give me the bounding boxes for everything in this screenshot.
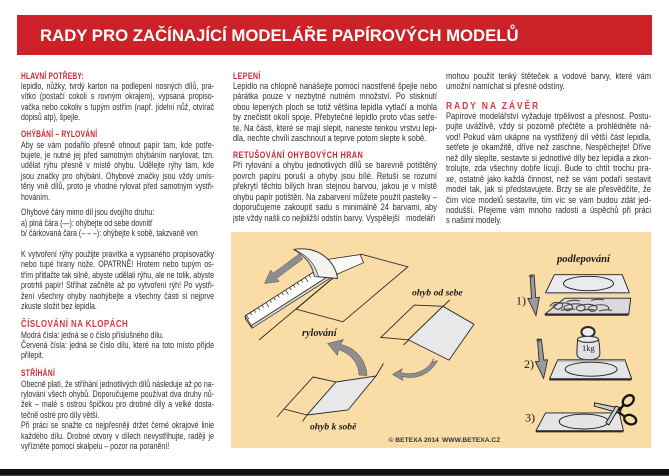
svg-text:1): 1) (516, 294, 526, 308)
svg-text:ohyb od sebe: ohyb od sebe (412, 287, 463, 298)
svg-text:1kg: 1kg (582, 343, 596, 353)
svg-text:2): 2) (524, 357, 534, 371)
svg-text:WWW.BETEXA.CZ: WWW.BETEXA.CZ (442, 437, 500, 444)
svg-text:rylování: rylování (302, 328, 338, 339)
svg-text:3): 3) (525, 410, 535, 424)
svg-text:podlepování: podlepování (556, 254, 611, 265)
svg-text:© BETEXA 2014: © BETEXA 2014 (389, 436, 440, 444)
svg-text:ohyb k sobě: ohyb k sobě (310, 421, 357, 432)
